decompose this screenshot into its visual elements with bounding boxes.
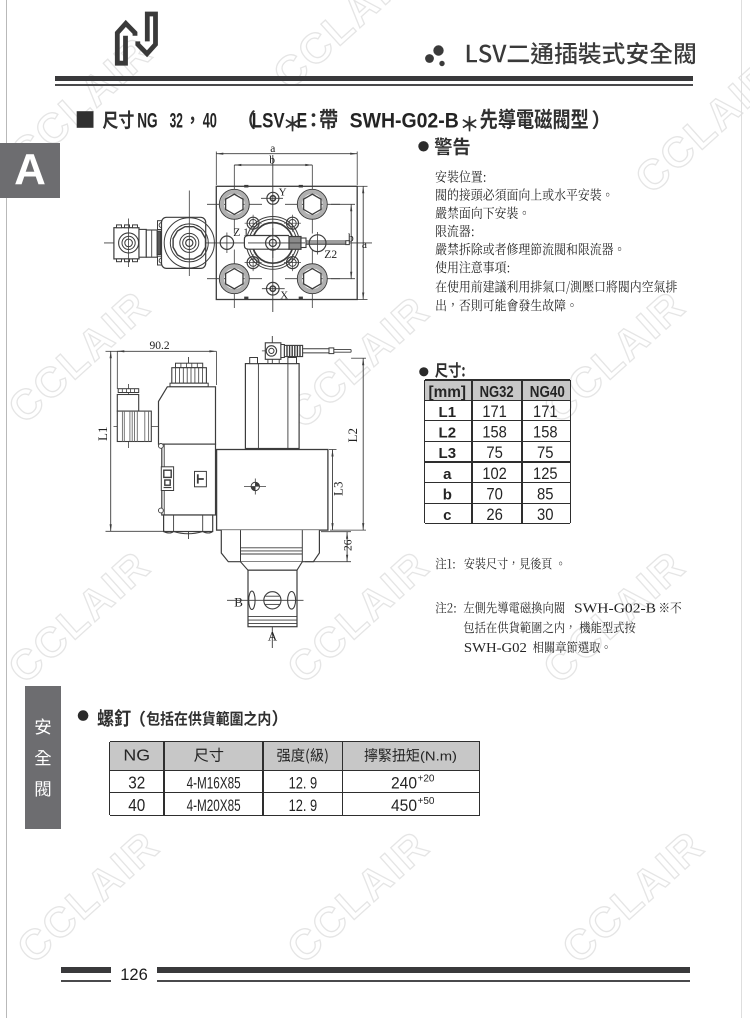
svg-text:SWH-G02-B: SWH-G02-B — [574, 601, 656, 616]
svg-text:40: 40 — [128, 795, 145, 815]
svg-text:(N.m): (N.m) — [420, 749, 457, 764]
svg-text:125: 125 — [533, 465, 558, 483]
svg-text:4-M16X85: 4-M16X85 — [187, 774, 241, 793]
svg-text:+20: +20 — [418, 774, 435, 785]
svg-text:LSV: LSV — [252, 109, 285, 132]
svg-text:+50: +50 — [418, 796, 435, 807]
svg-text:b: b — [443, 486, 452, 503]
svg-text:NG40: NG40 — [530, 384, 565, 401]
svg-text:75: 75 — [486, 444, 503, 462]
svg-text:SWH-G02: SWH-G02 — [464, 640, 527, 655]
svg-text:E: E — [297, 109, 308, 132]
svg-text:12. 9: 12. 9 — [289, 774, 318, 793]
svg-text:c: c — [443, 507, 451, 524]
svg-text:L1: L1 — [439, 404, 457, 421]
svg-text:32: 32 — [128, 773, 145, 793]
svg-text:450: 450 — [391, 796, 417, 815]
svg-text:171: 171 — [482, 403, 507, 421]
svg-text:26: 26 — [486, 506, 503, 524]
svg-text:L2: L2 — [439, 425, 457, 442]
svg-text:L3: L3 — [439, 445, 457, 462]
svg-text:158: 158 — [533, 424, 558, 442]
svg-text:4-M20X85: 4-M20X85 — [187, 796, 241, 815]
svg-text:85: 85 — [537, 485, 554, 503]
svg-text:NG32: NG32 — [480, 384, 514, 401]
svg-text:171: 171 — [533, 403, 558, 421]
svg-text:75: 75 — [537, 444, 554, 462]
svg-text:30: 30 — [537, 506, 554, 524]
svg-text:SWH-G02-B: SWH-G02-B — [350, 109, 459, 132]
svg-text:a: a — [443, 466, 452, 483]
svg-text:[mm]: [mm] — [429, 384, 467, 401]
svg-text:102: 102 — [482, 465, 507, 483]
svg-text:240: 240 — [391, 774, 417, 793]
svg-text:NG: NG — [137, 109, 157, 132]
svg-text:12. 9: 12. 9 — [289, 796, 318, 815]
svg-text:70: 70 — [486, 485, 503, 503]
svg-text:158: 158 — [482, 424, 507, 442]
svg-text:32: 32 — [170, 109, 183, 132]
svg-text:NG: NG — [123, 748, 150, 765]
svg-text:40: 40 — [203, 109, 217, 132]
